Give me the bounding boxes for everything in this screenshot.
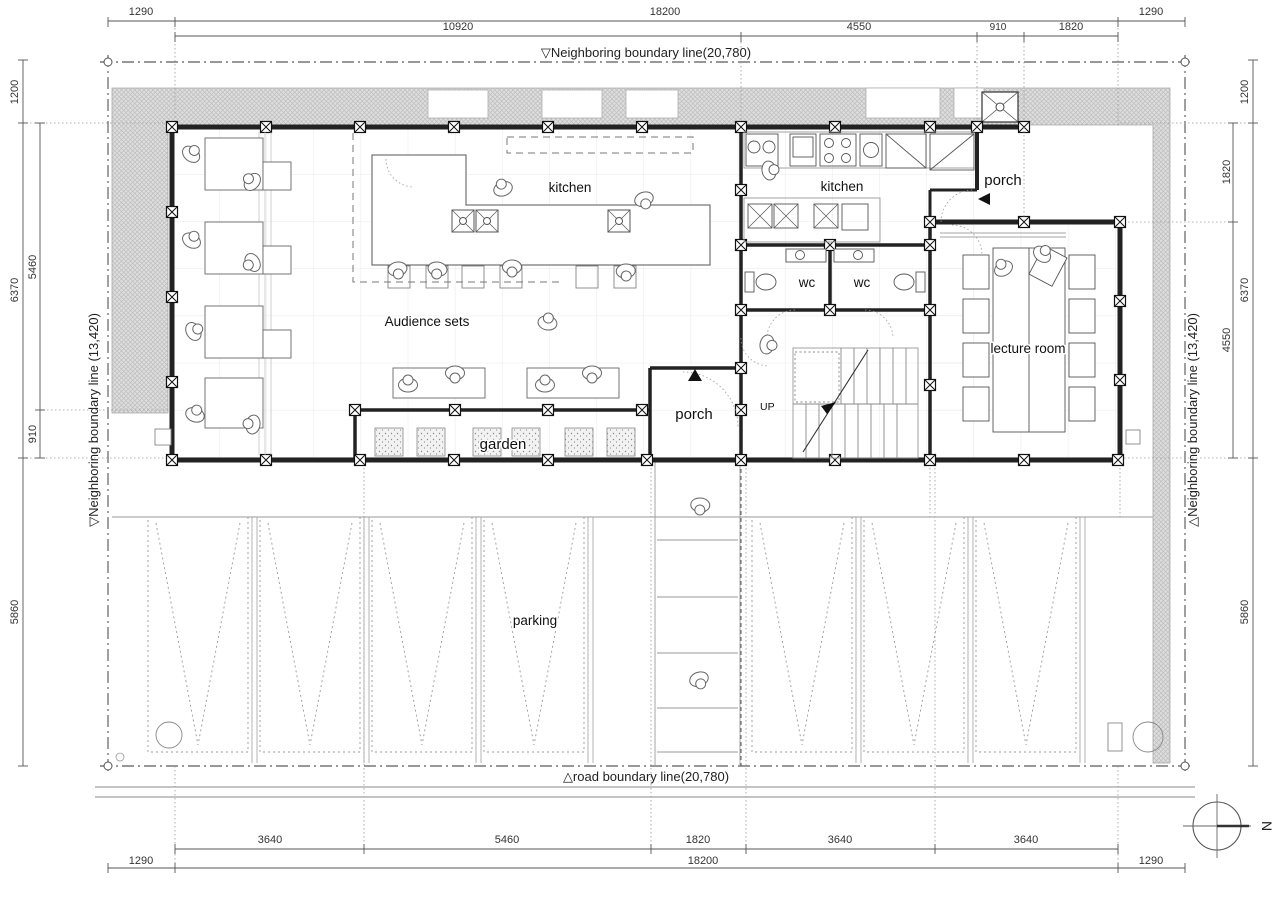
dim-right-1200: 1200 bbox=[1239, 80, 1251, 104]
dim-top-4550: 4550 bbox=[847, 21, 871, 33]
room-label-porch-upper: porch bbox=[984, 172, 1022, 189]
room-label-kitchen-main: kitchen bbox=[549, 180, 592, 195]
dim-right-1820: 1820 bbox=[1221, 160, 1233, 184]
boundary-label-right: △Neighboring boundary line (13,420) bbox=[1185, 313, 1200, 527]
meter-box-right bbox=[1126, 430, 1140, 444]
dim-right-5860: 5860 bbox=[1239, 600, 1251, 624]
dim-bottom-18200: 18200 bbox=[688, 855, 719, 867]
dimensions-right: 1200 6370 5860 1820 4550 bbox=[1221, 60, 1258, 766]
lecture-furniture bbox=[940, 233, 1095, 432]
meter-box-left bbox=[155, 429, 171, 445]
room-label-porch-lower: porch bbox=[675, 406, 713, 423]
dimensions-top: 1290 18200 1290 10920 4550 910 1820 bbox=[108, 6, 1185, 42]
dim-bottom-5460: 5460 bbox=[495, 834, 519, 846]
dimensions-bottom: 3640 5460 1820 3640 3640 18200 1290 1290 bbox=[108, 834, 1185, 873]
parking-stalls bbox=[148, 517, 1076, 752]
dim-top-18200: 18200 bbox=[650, 6, 681, 18]
water-heater-icon bbox=[982, 92, 1018, 122]
dim-left-1200: 1200 bbox=[9, 80, 21, 104]
boundary-label-road: △road boundary line(20,780) bbox=[563, 769, 729, 784]
dim-left-5460: 5460 bbox=[27, 255, 39, 279]
room-label-kitchen-sub: kitchen bbox=[821, 179, 864, 194]
dim-top-1290-left: 1290 bbox=[129, 6, 153, 18]
utility-box bbox=[1108, 723, 1122, 751]
floor-plan-page: 1290 18200 1290 10920 4550 910 1820 3640… bbox=[0, 0, 1280, 898]
dim-right-4550: 4550 bbox=[1221, 328, 1233, 352]
room-label-up: UP bbox=[760, 401, 775, 413]
dim-bottom-1290-right: 1290 bbox=[1139, 855, 1163, 867]
north-label: N bbox=[1259, 821, 1275, 831]
dim-bottom-3640-1: 3640 bbox=[258, 834, 282, 846]
entrance-arrow-east bbox=[978, 193, 990, 205]
floor-plan-drawing: 1290 18200 1290 10920 4550 910 1820 3640… bbox=[0, 0, 1280, 898]
dim-left-5860: 5860 bbox=[9, 600, 21, 624]
dim-top-10920: 10920 bbox=[443, 21, 474, 33]
room-label-wc-left: wc bbox=[798, 275, 816, 290]
stall-dividers bbox=[252, 517, 1085, 763]
room-label-audience-sets: Audience sets bbox=[385, 314, 470, 329]
road-edge-lines bbox=[95, 787, 1195, 797]
boundary-label-left: ▽Neighboring boundary line (13,420) bbox=[86, 313, 101, 527]
dim-top-910: 910 bbox=[990, 22, 1007, 33]
dim-bottom-1290-left: 1290 bbox=[129, 855, 153, 867]
dim-top-1820: 1820 bbox=[1059, 21, 1083, 33]
dimensions-left: 1200 6370 5860 5460 910 bbox=[9, 60, 45, 766]
parking-area: parking bbox=[112, 462, 1163, 765]
room-label-wc-right: wc bbox=[853, 275, 871, 290]
dim-right-6370: 6370 bbox=[1239, 278, 1251, 302]
landscape-circle-left bbox=[156, 722, 182, 748]
north-compass: N bbox=[1183, 794, 1275, 858]
dim-left-910: 910 bbox=[27, 425, 39, 443]
dim-bottom-3640-3: 3640 bbox=[1014, 834, 1038, 846]
dim-bottom-3640-2: 3640 bbox=[828, 834, 852, 846]
dim-top-1290-right: 1290 bbox=[1139, 6, 1163, 18]
dim-bottom-1820: 1820 bbox=[686, 834, 710, 846]
room-label-parking: parking bbox=[513, 613, 557, 628]
room-label-garden: garden bbox=[480, 436, 527, 453]
survey-point-icon bbox=[116, 753, 124, 761]
boundary-label-top: ▽Neighboring boundary line(20,780) bbox=[541, 45, 751, 60]
room-label-lecture-room: lecture room bbox=[990, 341, 1065, 356]
dim-left-6370: 6370 bbox=[9, 278, 21, 302]
